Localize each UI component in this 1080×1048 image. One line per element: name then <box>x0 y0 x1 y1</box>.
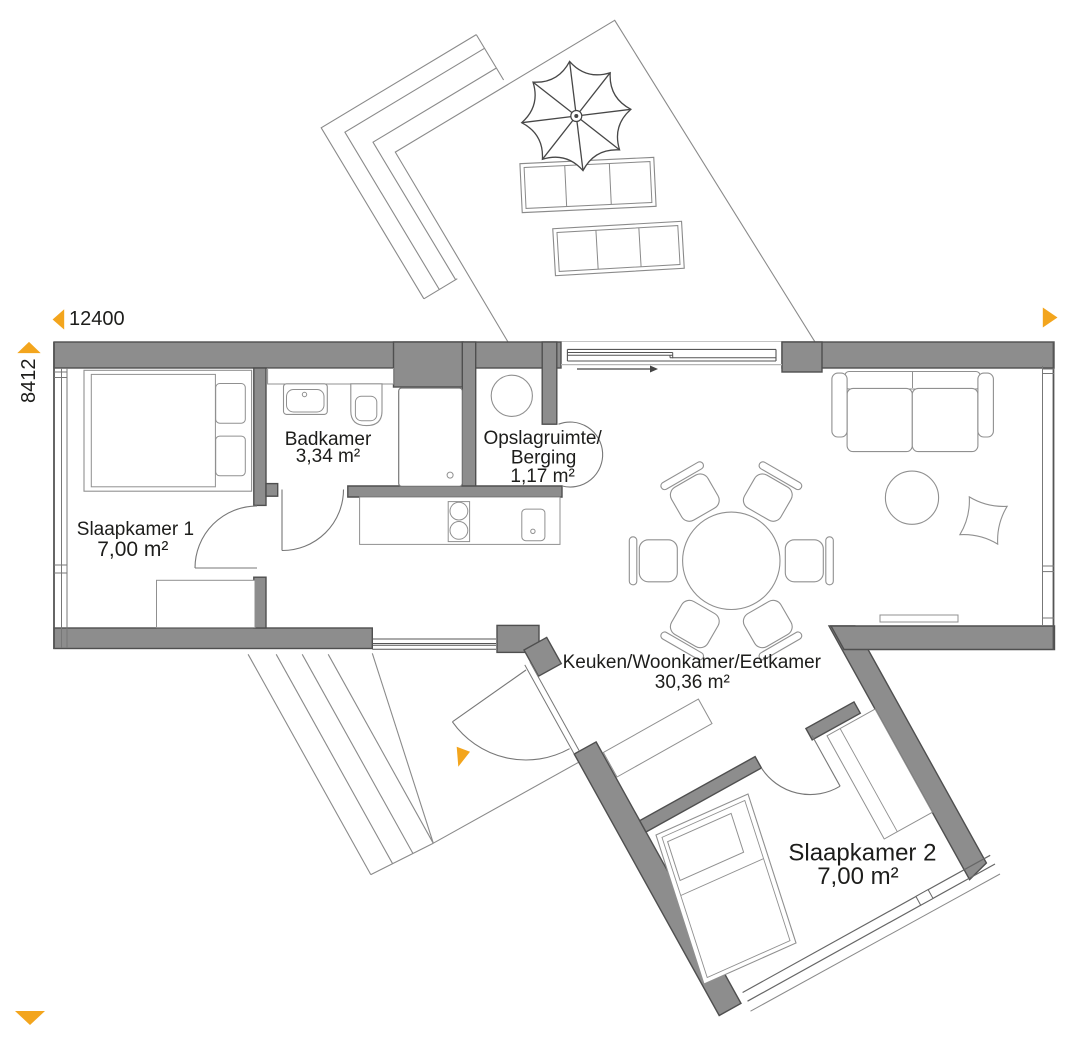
svg-text:Keuken/Woonkamer/Eetkamer: Keuken/Woonkamer/Eetkamer <box>563 652 822 673</box>
svg-text:3,34 m²: 3,34 m² <box>296 446 360 467</box>
svg-text:Opslagruimte/: Opslagruimte/ <box>483 428 602 449</box>
svg-text:Slaapkamer 1: Slaapkamer 1 <box>77 519 194 540</box>
svg-text:12400: 12400 <box>69 308 125 330</box>
svg-text:7,00 m²: 7,00 m² <box>817 863 898 890</box>
svg-text:1,17 m²: 1,17 m² <box>510 466 574 487</box>
svg-text:30,36 m²: 30,36 m² <box>655 672 730 693</box>
svg-text:7,00 m²: 7,00 m² <box>97 538 168 561</box>
svg-text:8412: 8412 <box>18 359 40 404</box>
